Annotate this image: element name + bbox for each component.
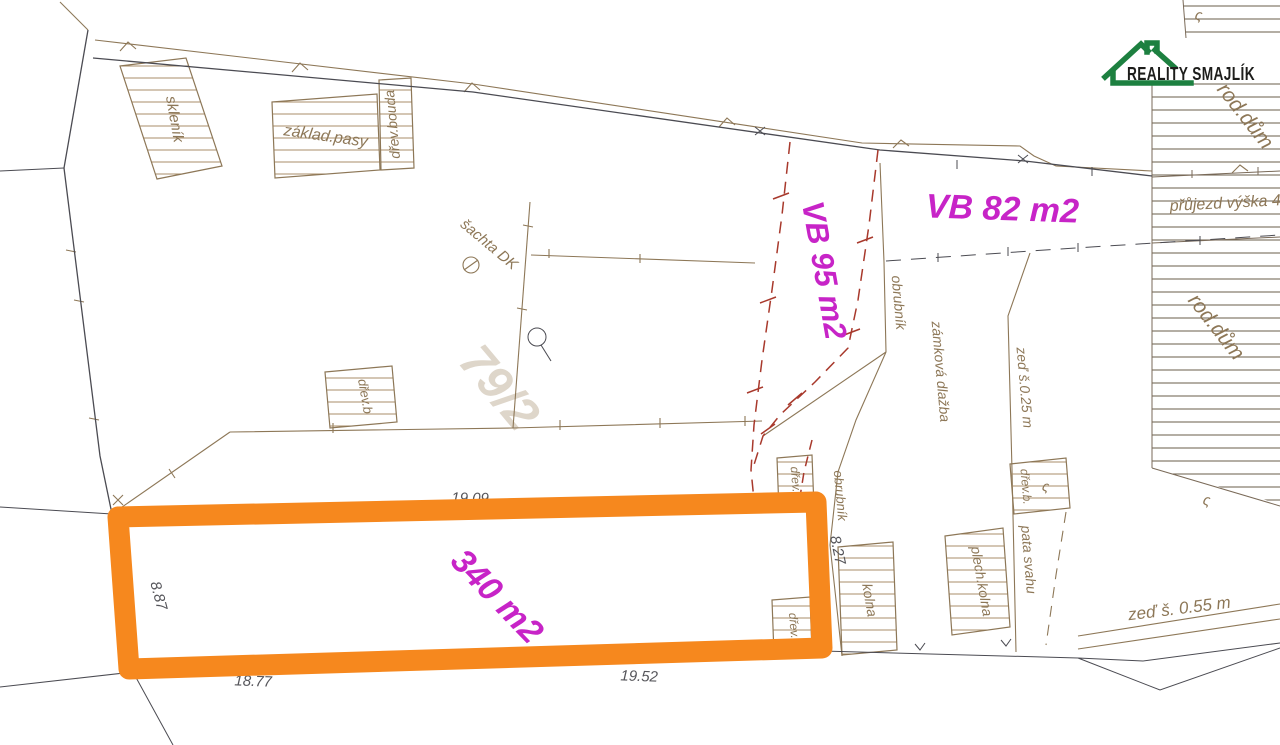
site-plan-page: 79/2: [0, 0, 1280, 745]
dim-left: 8.87: [146, 580, 170, 613]
inner-fence-line: [531, 255, 755, 263]
dim-right-hidden: 8.27: [826, 534, 849, 567]
north-boundary: [93, 58, 1152, 176]
label-vb95: VB 95 m2: [795, 198, 854, 342]
tree-symbol-tail: [541, 345, 551, 361]
x-mark-west: [113, 495, 123, 505]
west-diagonal-fence: [112, 432, 230, 514]
slope-foot-dashed-line: [1046, 512, 1066, 645]
label-paving: zámková dlažba: [929, 319, 954, 422]
s-mark-house: ς: [1202, 492, 1212, 510]
logo-brand-text: REALITY SMAJLÍK: [1127, 63, 1255, 84]
north-boundary-ticks: [957, 160, 1092, 176]
label-wood-shed-bottom: dřev.: [786, 612, 802, 639]
shaft-symbol-slash: [464, 260, 478, 270]
dim-bottom-right: 19.52: [620, 667, 659, 685]
bottom-left-lines: [0, 672, 173, 745]
buildings: [120, 0, 1280, 655]
west-boundary: [64, 168, 112, 514]
logo: REALITY SMAJLÍK: [1105, 43, 1255, 84]
label-area-340: 340 m2: [443, 542, 551, 651]
v-marks: [915, 639, 1011, 650]
label-curb-1: obrubník: [889, 275, 910, 332]
site-plan-canvas: 79/2: [0, 0, 1280, 745]
fence-lines: [60, 2, 1280, 656]
north-fence-line: [95, 40, 1152, 171]
label-slope-foot: pata svahu: [1018, 524, 1040, 595]
west-ticks: [66, 250, 99, 420]
parcel-number-watermark: 79/2: [449, 335, 550, 441]
corner-line: [60, 2, 88, 30]
label-shaft: šachta DK: [457, 216, 522, 274]
label-vb82: VB 82 m2: [925, 187, 1079, 230]
west-connector-bottom: [0, 507, 112, 514]
label-wall-025: zeď š.0.25 m: [1013, 345, 1036, 429]
easement-lines: [747, 142, 878, 503]
easement-line-west: [751, 142, 790, 500]
tree-symbol: [528, 328, 546, 346]
curb-line-1: [880, 163, 886, 352]
northwest-boundary: [64, 30, 88, 168]
west-connector-top: [0, 168, 64, 171]
